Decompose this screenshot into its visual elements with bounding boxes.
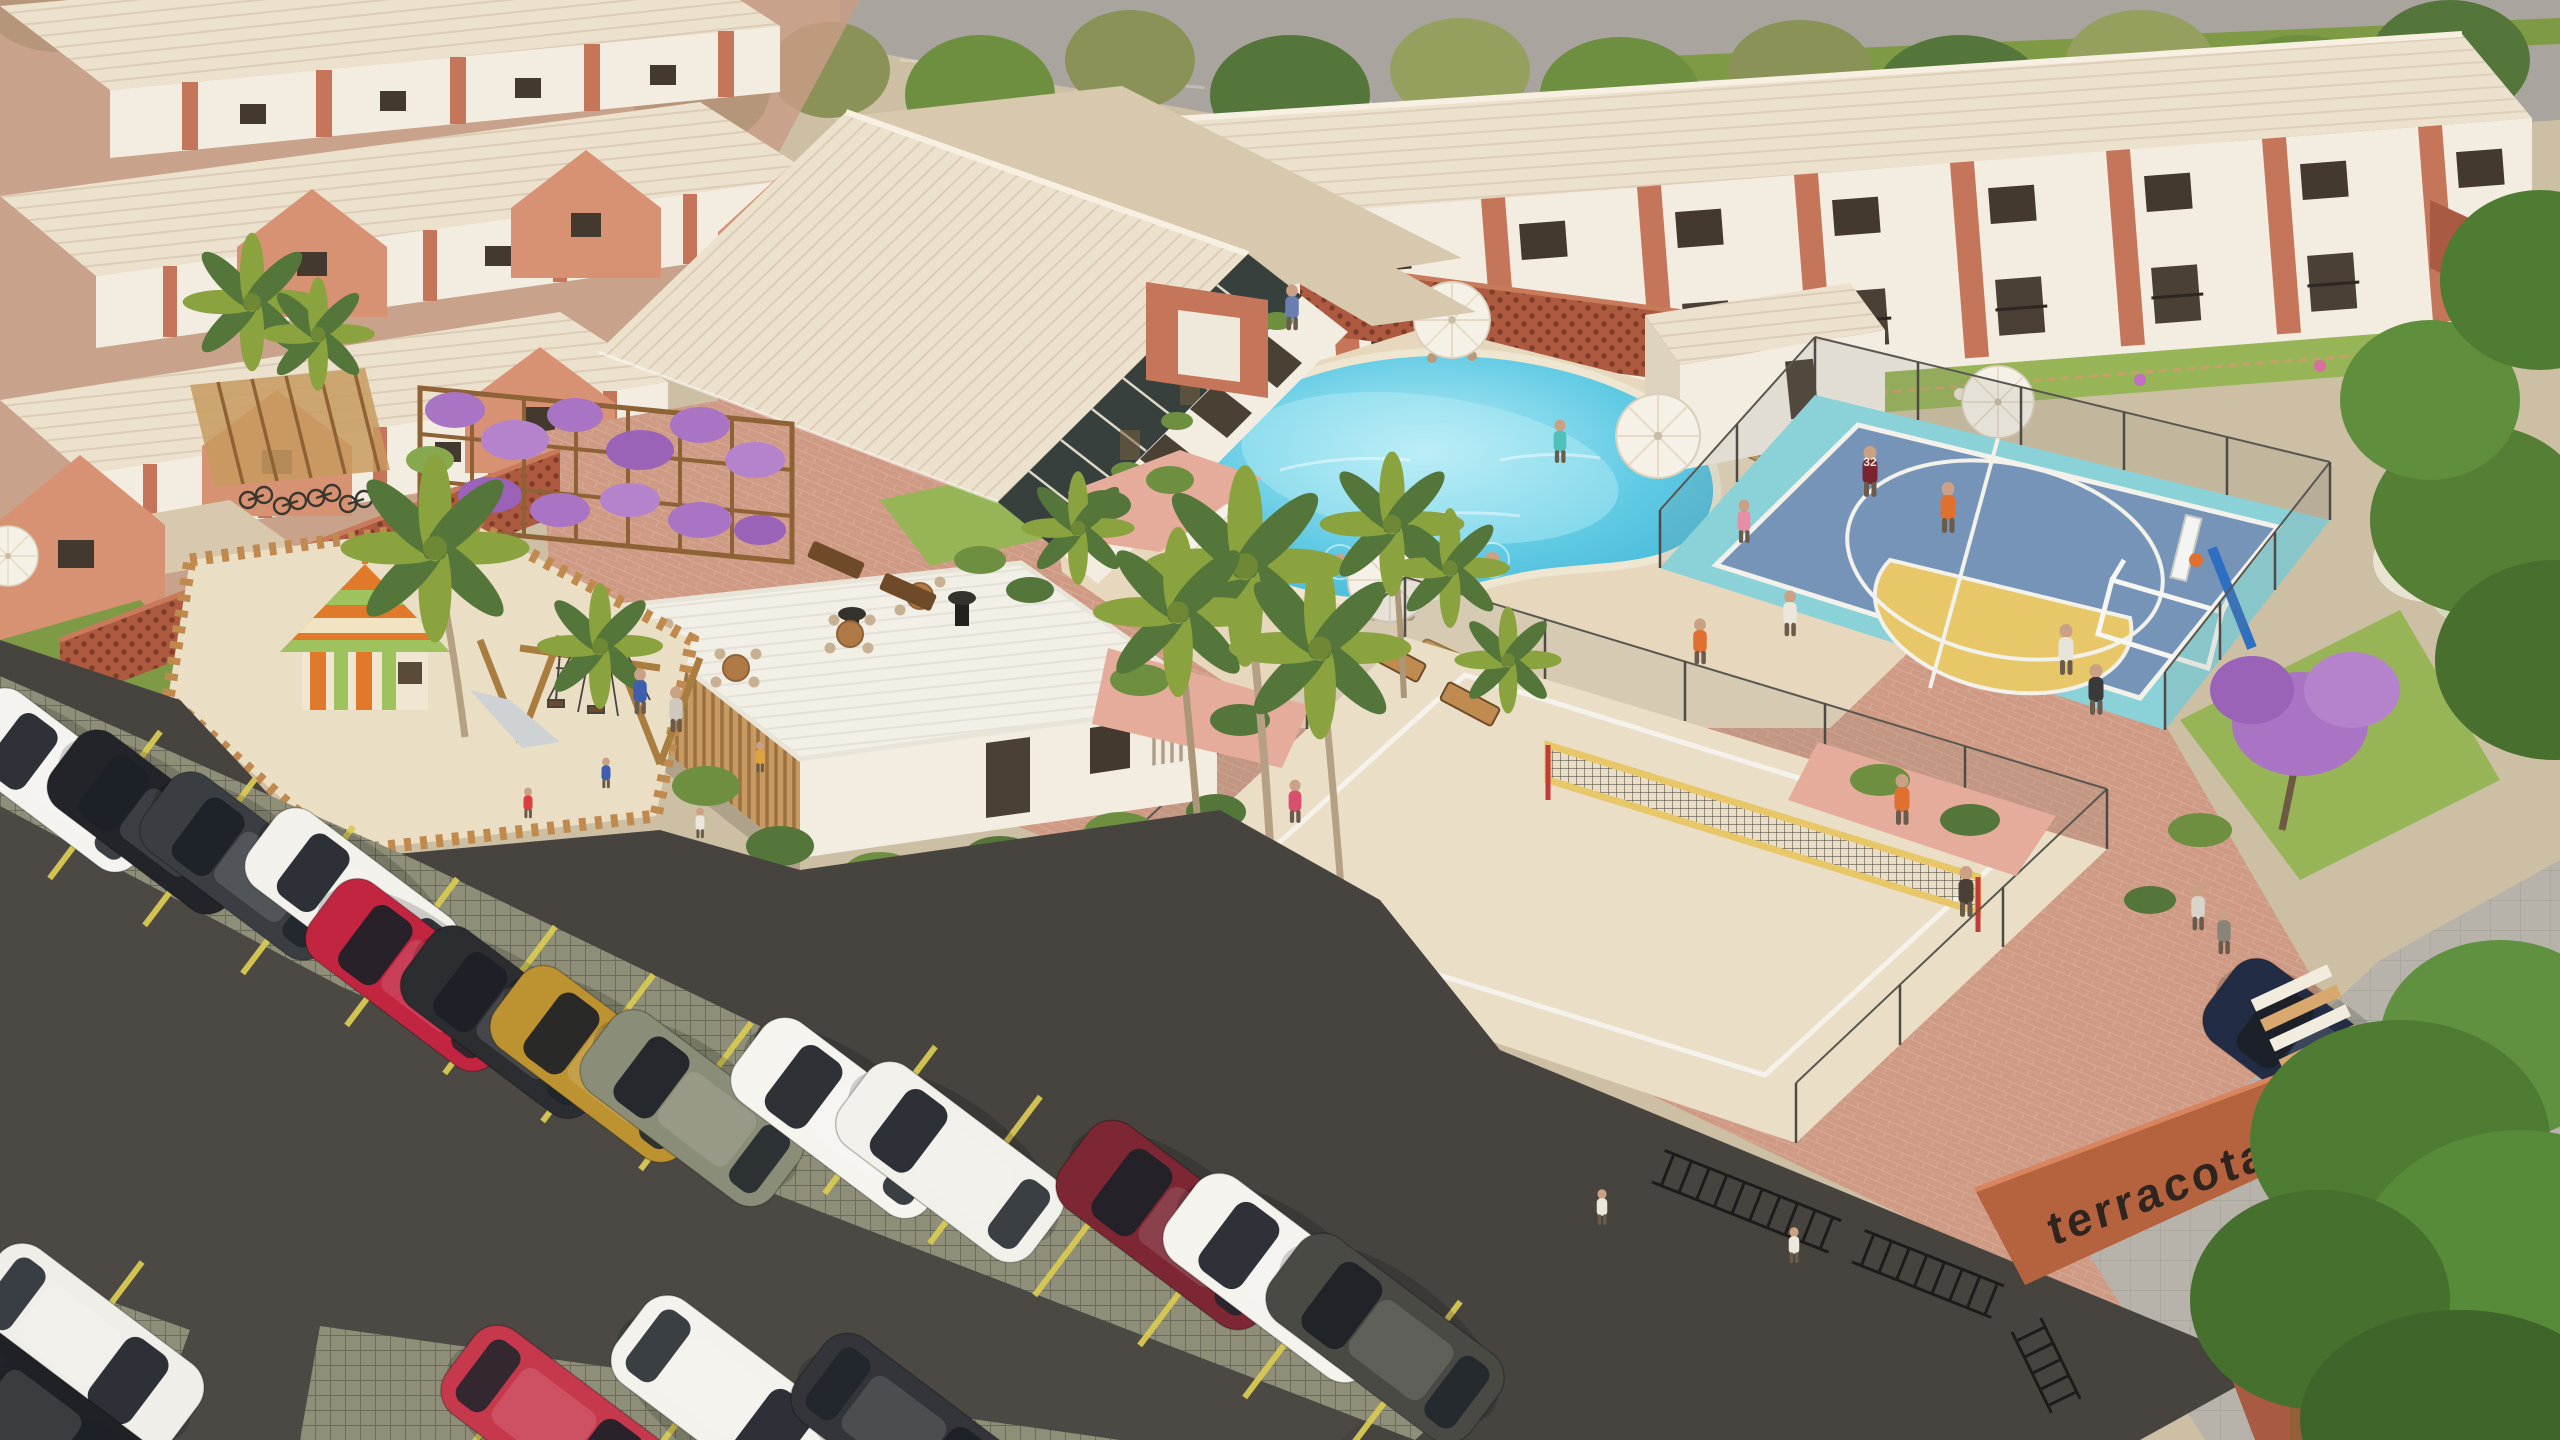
jersey-number: 32 <box>1863 455 1877 469</box>
render-canvas: terracota 32 <box>0 0 2560 1440</box>
entrance-portico <box>1146 282 1268 398</box>
condominium-aerial-render: terracota 32 <box>0 0 2560 1440</box>
